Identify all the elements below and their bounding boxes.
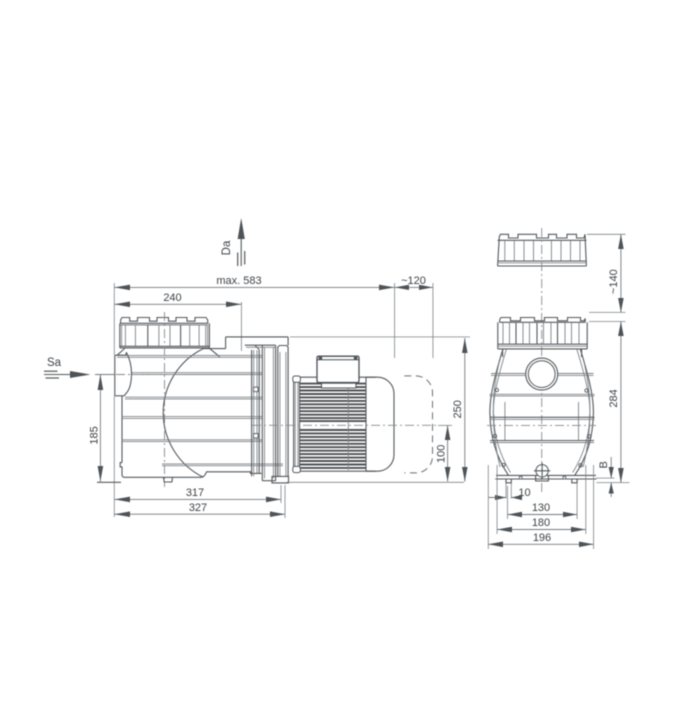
svg-text:185: 185 [89,426,101,444]
svg-text:100: 100 [436,445,448,463]
svg-text:284: 284 [608,389,620,407]
svg-text:196: 196 [533,532,551,544]
svg-text:250: 250 [452,400,464,418]
svg-text:240: 240 [163,292,181,304]
svg-text:180: 180 [532,517,550,529]
svg-text:~120: ~120 [401,275,426,287]
svg-text:Da: Da [221,240,233,255]
svg-text:327: 327 [189,502,207,514]
svg-text:~140: ~140 [608,269,620,294]
svg-text:10: 10 [518,487,530,499]
svg-text:317: 317 [186,487,204,499]
svg-text:max. 583: max. 583 [216,275,261,287]
svg-text:130: 130 [532,502,550,514]
svg-text:B: B [598,461,610,468]
svg-text:Sa: Sa [47,357,62,369]
